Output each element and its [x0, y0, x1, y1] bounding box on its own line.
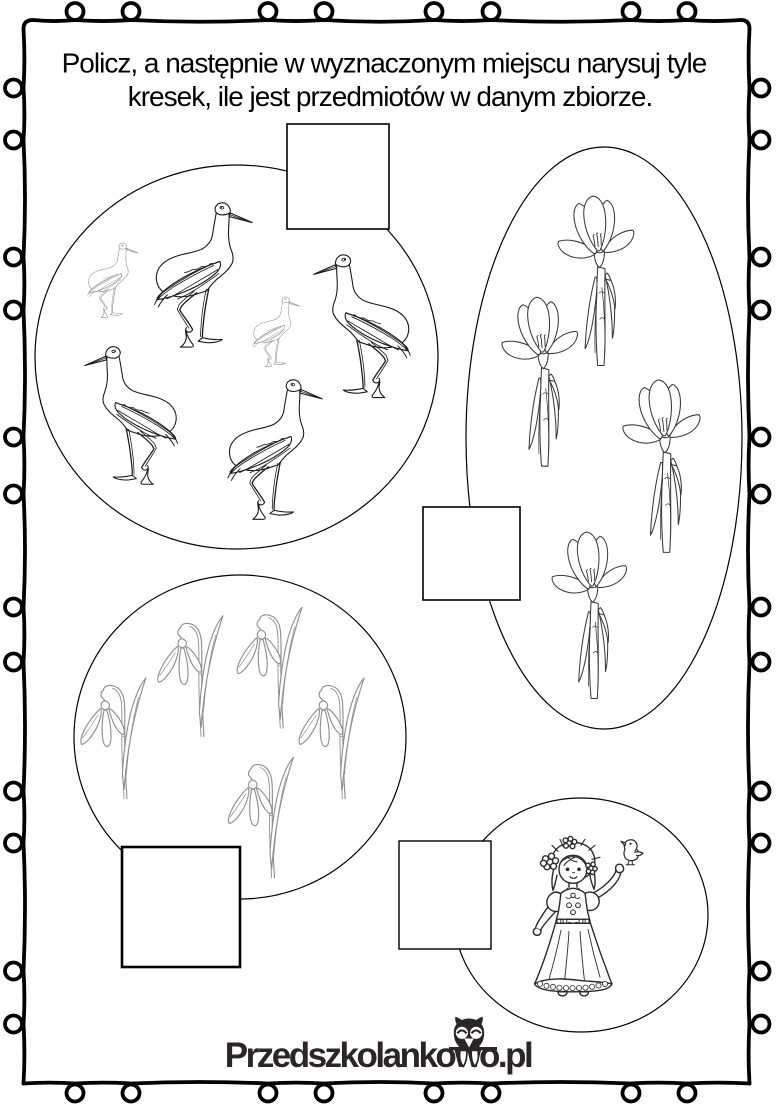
- svg-text:Policz, a następnie w wyznaczo: Policz, a następnie w wyznaczonym miejsc…: [62, 48, 707, 79]
- svg-text:kresek, ile jest przedmiotów w: kresek, ile jest przedmiotów w danym zbi…: [128, 81, 653, 112]
- svg-text:Przedszkolankowo.pl: Przedszkolankowo.pl: [225, 1036, 532, 1075]
